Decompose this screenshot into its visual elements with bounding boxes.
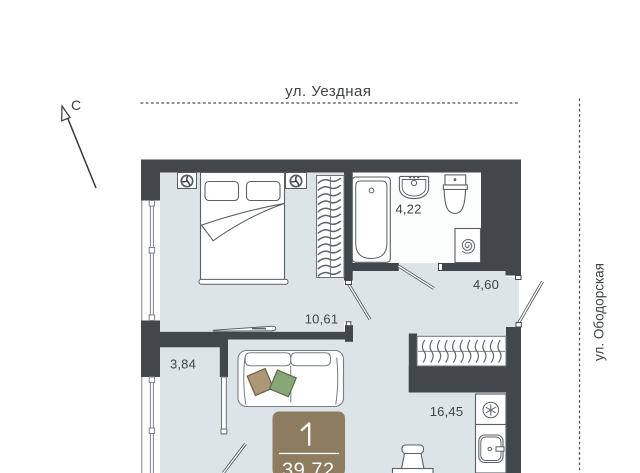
svg-text:10,61: 10,61 bbox=[305, 312, 339, 327]
svg-text:ул. Ободорская: ул. Ободорская bbox=[592, 263, 607, 361]
svg-text:С: С bbox=[71, 97, 81, 113]
svg-text:4,22: 4,22 bbox=[395, 202, 421, 217]
svg-text:ул. Уездная: ул. Уездная bbox=[285, 83, 371, 100]
svg-text:39,72: 39,72 bbox=[282, 460, 335, 473]
svg-text:3,84: 3,84 bbox=[170, 357, 196, 372]
svg-text:16,45: 16,45 bbox=[430, 404, 464, 419]
svg-text:4,60: 4,60 bbox=[473, 277, 499, 292]
